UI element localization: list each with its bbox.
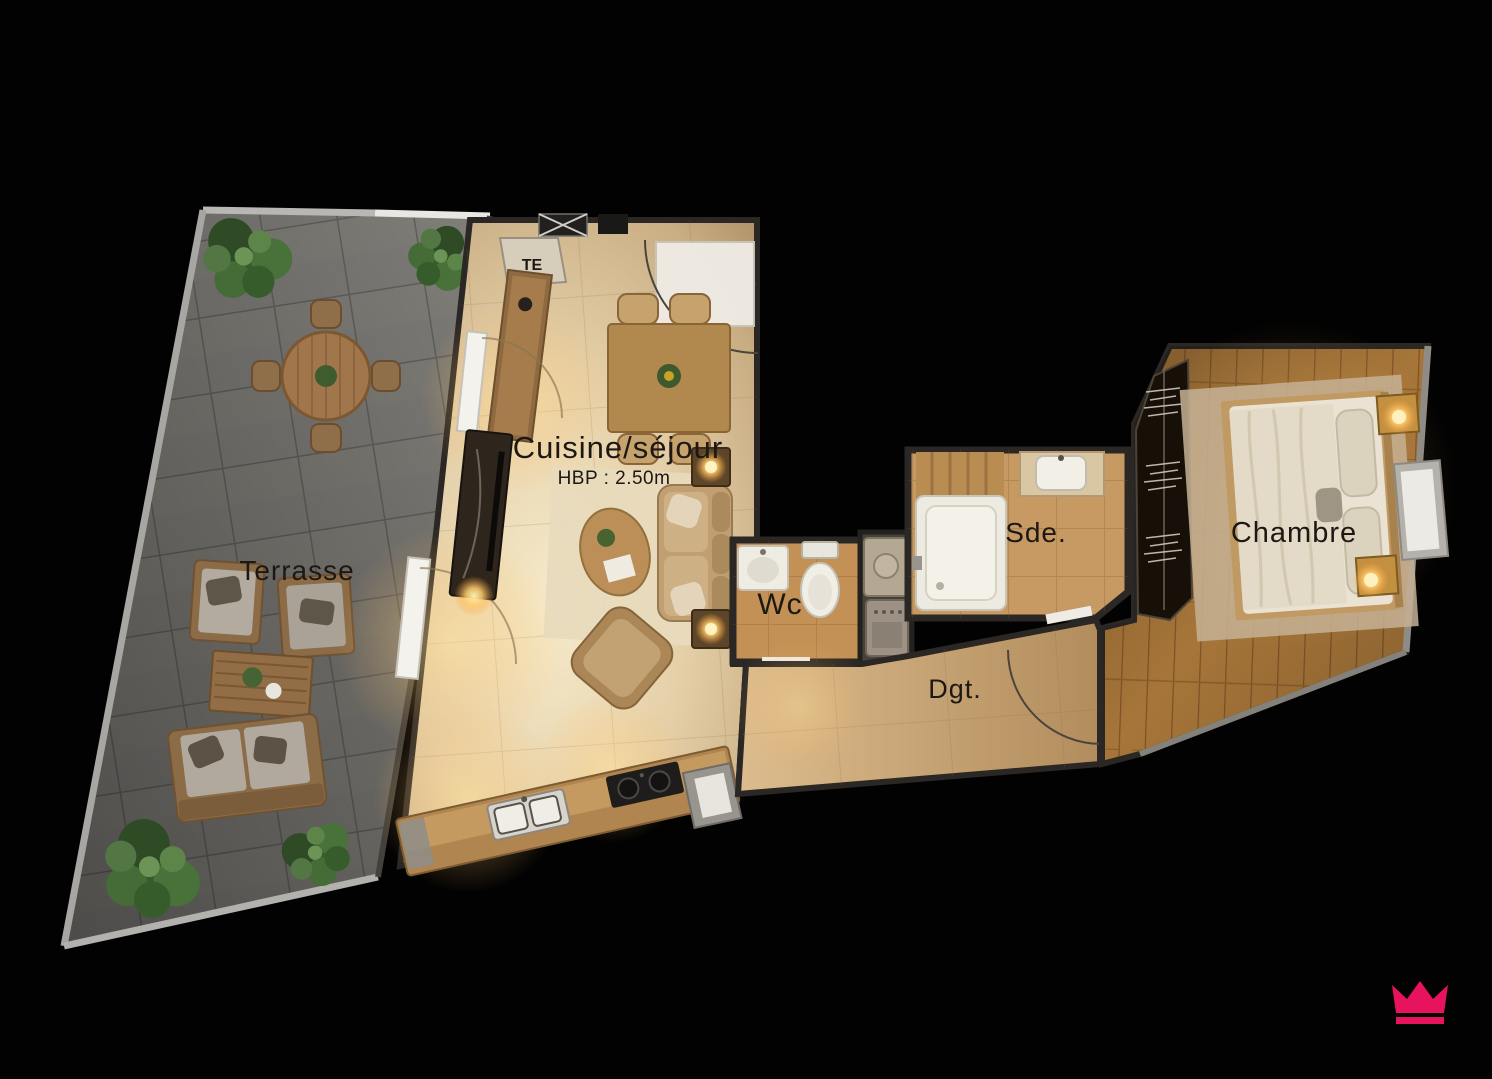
crown-icon xyxy=(1392,981,1448,1013)
sde-room: Sde. xyxy=(908,450,1128,624)
room-label-dgt: Dgt. xyxy=(928,674,982,704)
pillow xyxy=(1336,409,1378,497)
terrace-wall-top xyxy=(203,210,375,213)
laundry-niche xyxy=(860,532,912,664)
crown-band xyxy=(1396,1017,1444,1024)
terrace-coffee-table xyxy=(209,651,313,718)
kitchen-appliance xyxy=(683,763,742,828)
room-label-sde: Sde. xyxy=(1005,517,1067,548)
room-label-chambre: Chambre xyxy=(1231,517,1357,549)
table-plant xyxy=(315,365,337,387)
vanity-washbasin xyxy=(1020,452,1104,496)
washing-machine xyxy=(864,538,908,596)
bedroom-window xyxy=(1394,460,1448,560)
duct-shaft xyxy=(539,214,628,236)
terrace-sofa xyxy=(167,713,327,823)
shower-tray xyxy=(912,496,1006,610)
bedroom: Chambre xyxy=(1102,321,1457,764)
room-label-wc: Wc xyxy=(757,588,802,621)
crown-logo xyxy=(1392,981,1448,1024)
wall-paneling xyxy=(916,452,1004,500)
floorplan-image: Terrasse TE xyxy=(0,0,1492,1079)
washbasin xyxy=(738,546,788,590)
room-label-cuisine-sejour: Cuisine/séjour xyxy=(513,430,723,465)
floor-lamp xyxy=(454,576,494,616)
terrace-wall-top-white xyxy=(375,213,490,216)
dryer xyxy=(866,600,908,656)
floorplan-svg: Terrasse TE xyxy=(0,0,1492,1079)
room-label-terrasse: Terrasse xyxy=(239,555,354,586)
toilet xyxy=(801,542,839,617)
sofa xyxy=(658,485,732,621)
side-table-lamp xyxy=(692,610,730,648)
room-sublabel-hbp: HBP : 2.50m xyxy=(558,468,671,489)
hallway: Dgt. xyxy=(730,620,1102,794)
